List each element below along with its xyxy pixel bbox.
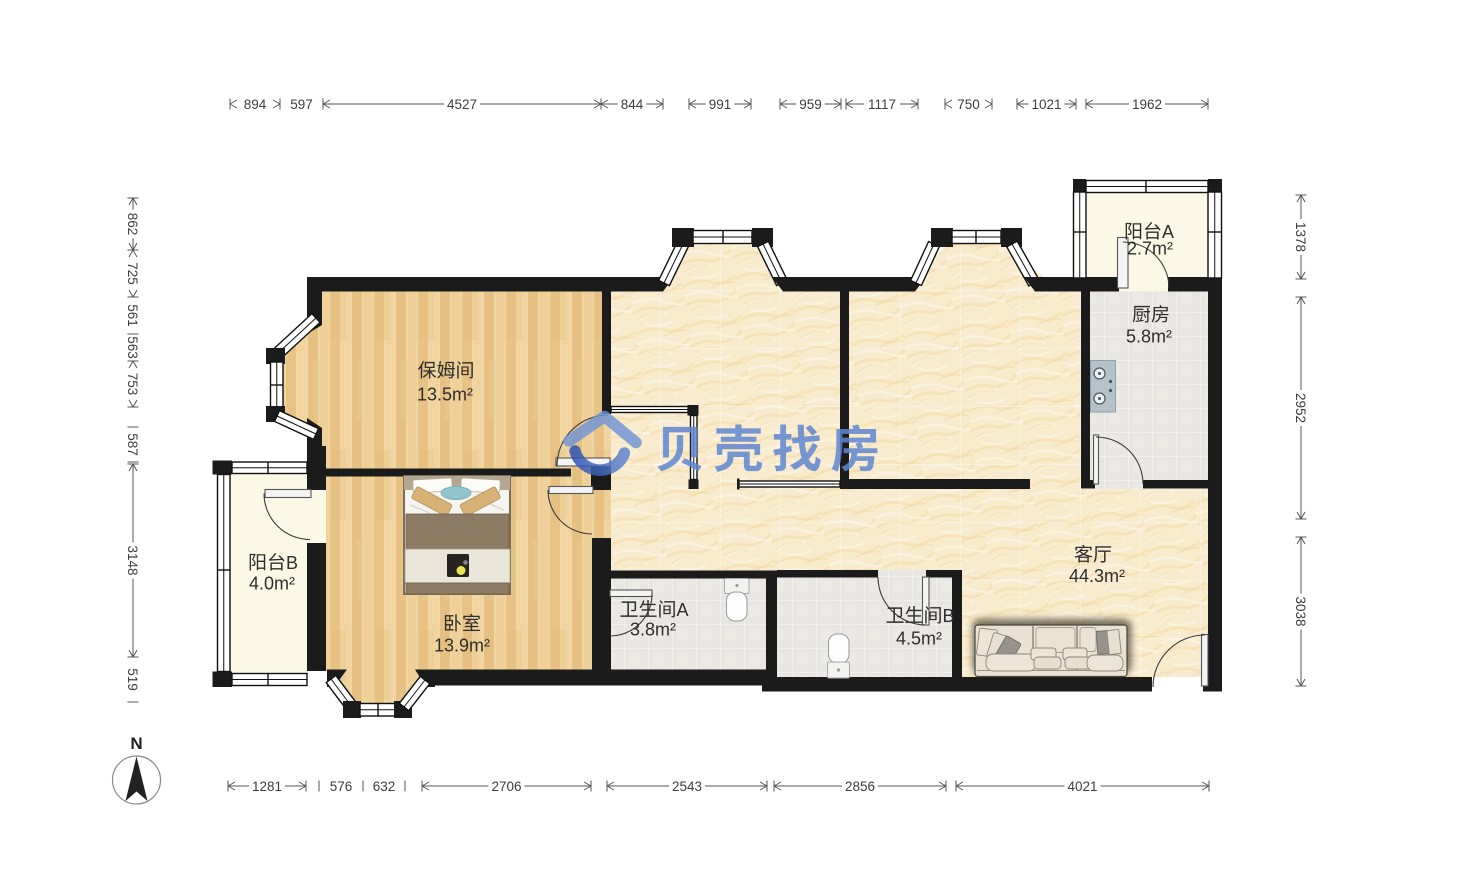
svg-text:13.5m²: 13.5m² [417, 385, 473, 405]
svg-text:3038: 3038 [1293, 596, 1308, 626]
svg-text:2.7m²: 2.7m² [1127, 239, 1173, 259]
svg-text:4021: 4021 [1067, 779, 1097, 794]
svg-text:2856: 2856 [845, 779, 875, 794]
svg-text:750: 750 [957, 97, 980, 112]
svg-text:2952: 2952 [1293, 393, 1308, 423]
svg-text:1117: 1117 [868, 97, 896, 112]
svg-text:B: B [286, 553, 298, 573]
svg-text:1378: 1378 [1293, 222, 1308, 252]
svg-text:B: B [943, 606, 955, 626]
svg-text:3148: 3148 [125, 545, 140, 575]
svg-text:1021: 1021 [1031, 97, 1061, 112]
svg-text:4527: 4527 [447, 97, 477, 112]
svg-text:A: A [677, 600, 689, 620]
svg-text:519: 519 [125, 668, 140, 691]
svg-text:587: 587 [125, 433, 140, 456]
svg-text:3.8m²: 3.8m² [630, 620, 676, 640]
svg-text:844: 844 [621, 97, 644, 112]
svg-text:753: 753 [125, 373, 140, 396]
svg-text:862: 862 [125, 213, 140, 236]
svg-text:2706: 2706 [491, 779, 521, 794]
svg-text:2543: 2543 [672, 779, 702, 794]
svg-text:N: N [130, 734, 142, 753]
svg-text:1962: 1962 [1132, 97, 1162, 112]
svg-text:561: 561 [125, 304, 140, 327]
svg-text:1281: 1281 [252, 779, 282, 794]
svg-text:4.5m²: 4.5m² [896, 629, 942, 649]
svg-text:991: 991 [709, 97, 732, 112]
svg-text:44.3m²: 44.3m² [1069, 566, 1125, 586]
svg-text:959: 959 [799, 97, 822, 112]
svg-text:894: 894 [244, 97, 267, 112]
svg-text:5.8m²: 5.8m² [1126, 327, 1172, 347]
svg-text:576: 576 [330, 779, 353, 794]
svg-text:597: 597 [290, 97, 313, 112]
svg-text:632: 632 [373, 779, 396, 794]
svg-text:725: 725 [125, 262, 140, 285]
svg-text:4.0m²: 4.0m² [249, 574, 295, 594]
svg-text:563: 563 [125, 336, 140, 359]
svg-text:13.9m²: 13.9m² [434, 636, 490, 656]
